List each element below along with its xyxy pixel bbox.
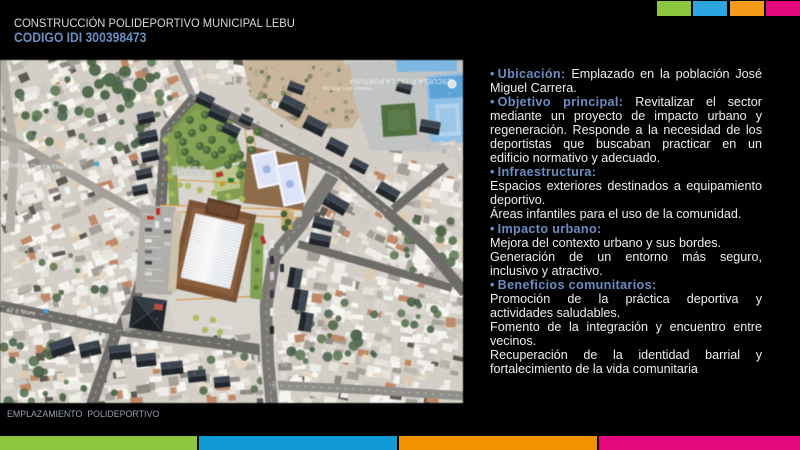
svg-text:Vicuna Las Vinnas: Vicuna Las Vinnas xyxy=(322,86,372,92)
svg-text:140: 140 xyxy=(143,95,152,101)
svg-text:Camp: Camp xyxy=(440,141,455,147)
svg-text:110: 110 xyxy=(120,76,129,82)
svg-text:ESCUELA F-792 LA FORTUNA: ESCUELA F-792 LA FORTUNA xyxy=(349,77,452,84)
